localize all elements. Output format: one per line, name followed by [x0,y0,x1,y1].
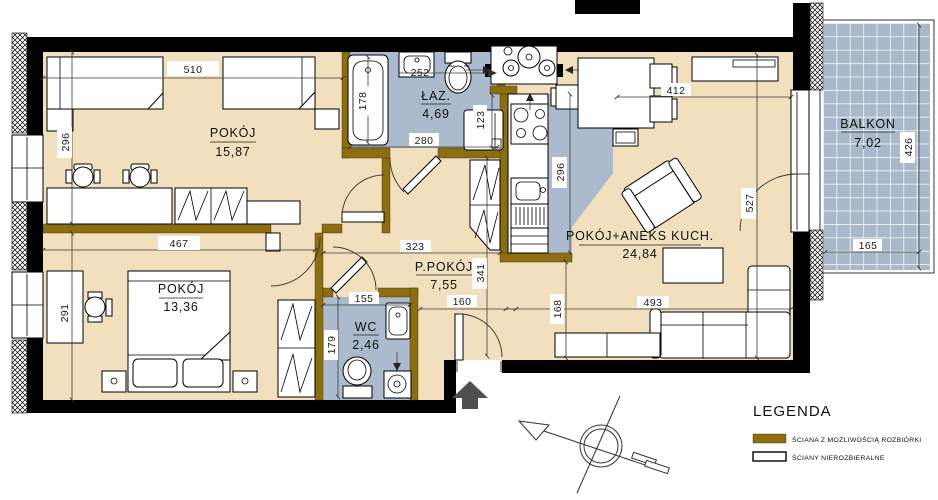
legend-item-label: ŚCIANY NIEROZBIERALNE [792,453,885,462]
hall-area: 7,55 [430,278,458,292]
legend-swatch-load-bearing [753,452,786,461]
floor-plan-page: 510 296 467 291 178 252 280 123 296 412 … [0,0,938,500]
window-room2 [12,272,43,338]
wc-basin [384,371,411,398]
stool [613,129,638,146]
dim-412: 412 [667,85,686,97]
wall-top [27,37,793,52]
wc-label: WC [355,320,377,334]
nightstand [315,109,339,129]
living-label: POKÓJ+ANEKS KUCH. [566,228,714,243]
hatch-right-top [810,3,823,90]
wc-area: 2,46 [352,338,380,352]
bed-single-1 [47,57,163,109]
dim-527: 527 [744,194,756,213]
dining-chair [551,85,578,109]
dim-291: 291 [59,304,71,323]
stove [511,104,548,144]
water-heater [491,46,557,84]
nightstand [233,371,257,392]
coffee-table [663,248,723,283]
wall-right-lower [793,230,810,373]
dining-table [578,58,654,128]
wall-top-stub [575,0,640,14]
dim-252: 252 [411,67,430,79]
dim-178: 178 [357,92,369,111]
drying-rack [511,204,548,228]
room2-area: 13,36 [163,300,198,314]
hatch-right-bottom [810,230,823,300]
room1-label: POKÓJ [210,125,256,140]
dim-165: 165 [859,240,878,252]
dining-chair [650,96,677,122]
dim-155: 155 [355,293,374,305]
hatch-left-top [12,33,27,133]
toilet-wc [343,357,372,398]
legend: LEGENDA ŚCIANA Z MOŻLIWOŚCIĄ ROZBIÓRKI Ś… [753,403,921,462]
balcony-door-window [791,90,809,232]
room2-label: POKÓJ [158,281,204,296]
floor-plan-drawing: 510 296 467 291 178 252 280 123 296 412 … [0,0,938,500]
hatch-left-bottom [12,340,27,413]
dim-341: 341 [475,264,487,283]
dim-123: 123 [475,111,487,130]
legend-swatch-demolishable [753,434,786,443]
tv-stand [555,333,660,357]
legend-title: LEGENDA [753,403,832,420]
north-arrow-icon [519,396,669,493]
balcony-label: BALKON [840,117,896,131]
dim-168: 168 [552,300,564,319]
dim-280: 280 [415,135,434,147]
sideboard [692,57,778,81]
window-room1 [12,135,43,202]
dim-493: 493 [644,297,663,309]
hall-label: P.POKÓJ [415,259,473,274]
valve [557,64,563,77]
wc-sink [386,303,410,339]
hatch-left-mid [12,202,27,270]
wall-bottom-left [27,400,456,413]
bathroom-label: ŁAZ. [421,89,451,103]
nightstand [102,371,126,392]
wall-entry-step [444,360,456,413]
dim-160: 160 [453,296,472,308]
wardrobe-room1 [175,188,247,224]
balcony-area: 7,02 [854,136,882,150]
desk-room1 [47,188,172,224]
side-table [247,201,300,224]
kitchen-drawers [511,228,548,253]
dim-296b: 296 [555,163,567,182]
dim-323: 323 [406,241,425,253]
room1-area: 15,87 [215,145,250,159]
bathroom-area: 4,69 [422,107,450,121]
dim-510: 510 [184,64,203,76]
wall-bottom-main [502,360,810,373]
wall-right-upper [793,3,810,90]
kitchen-sink [511,178,548,204]
legend-item-label: ŚCIANA Z MOŻLIWOŚCIĄ ROZBIÓRKI [792,435,921,444]
bed-single-2 [223,57,315,109]
wardrobe-room2 [278,300,315,397]
dim-426: 426 [903,138,915,157]
living-area: 24,84 [622,247,657,261]
dim-179: 179 [326,336,338,355]
toilet-bathroom [445,52,471,93]
dim-296: 296 [60,133,72,152]
entrance-arrow-icon [452,381,488,409]
dim-467: 467 [170,238,189,250]
wall-left [27,37,43,413]
